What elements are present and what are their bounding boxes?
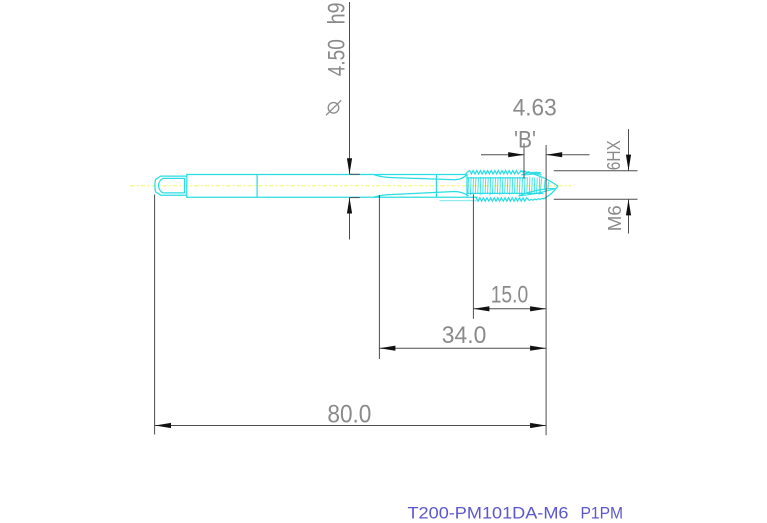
svg-text:15.0: 15.0	[491, 282, 529, 309]
svg-text:4.63: 4.63	[513, 95, 557, 122]
svg-text:80.0: 80.0	[327, 401, 371, 429]
svg-text:34.0: 34.0	[442, 322, 487, 349]
svg-text:P1PM: P1PM	[581, 504, 624, 522]
svg-text:M6: M6	[605, 205, 625, 231]
svg-text:'B': 'B'	[514, 127, 536, 154]
svg-text:h9: h9	[323, 2, 350, 24]
svg-text:4.50: 4.50	[323, 39, 350, 76]
svg-text:6HX: 6HX	[604, 140, 624, 170]
svg-text:T200-PM101DA-M6: T200-PM101DA-M6	[408, 504, 569, 522]
